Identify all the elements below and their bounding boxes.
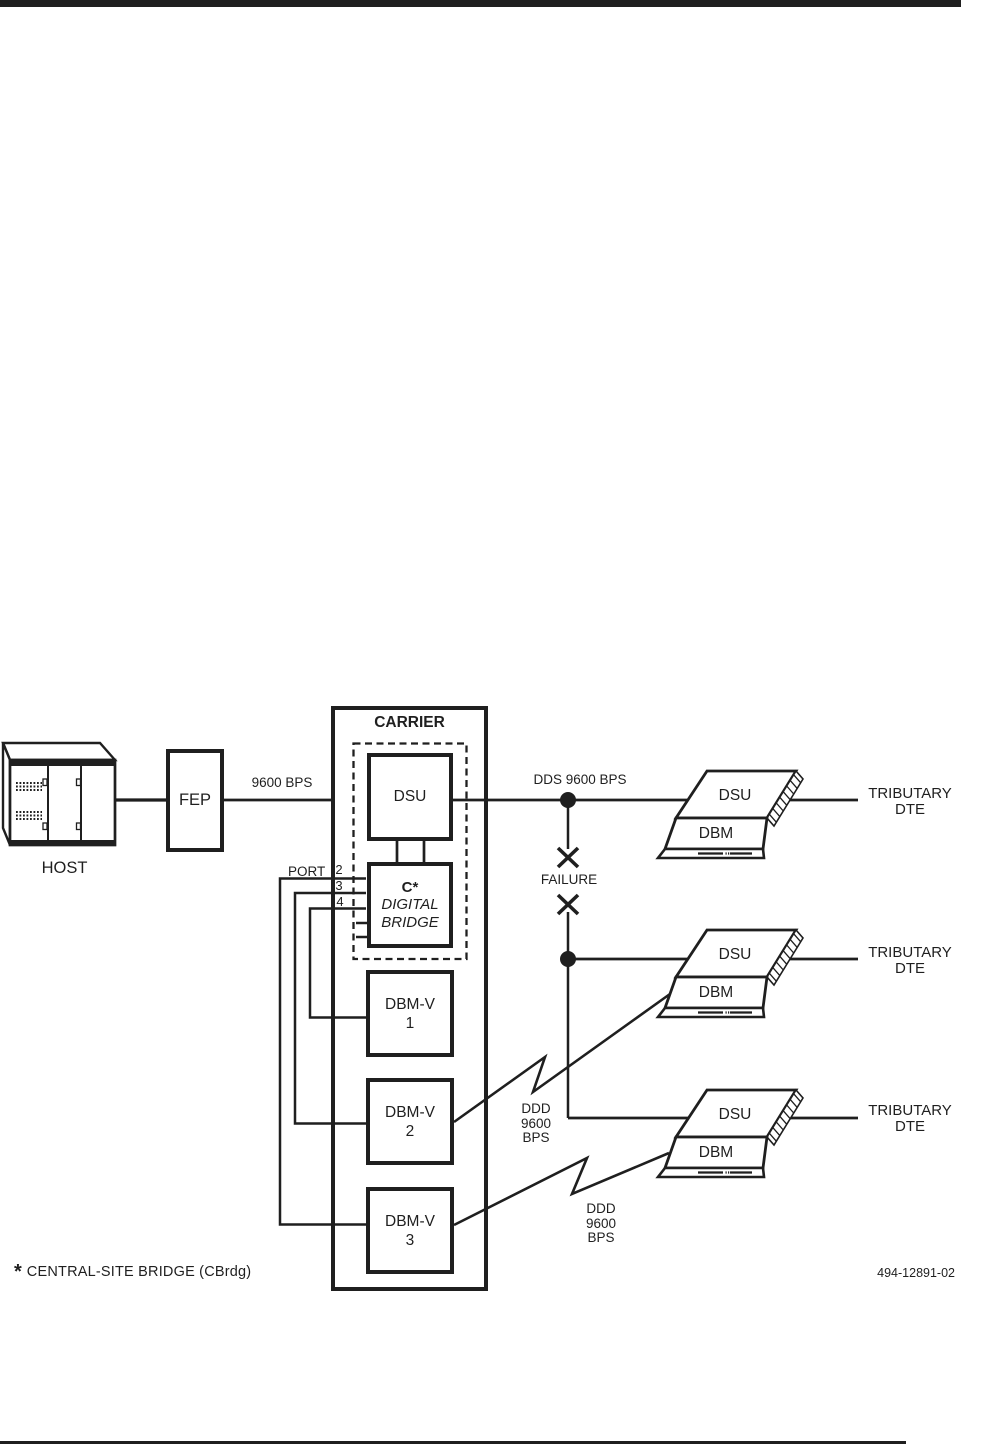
host-line-speed-label: 9600 BPS: [232, 775, 332, 790]
tributary-3-dbm-label: DBM: [676, 1144, 756, 1161]
port-label: PORT: [288, 864, 325, 879]
junction-dot-2: [560, 951, 576, 967]
tributary-unit-3: [658, 1090, 803, 1177]
figure-number: 494-12891-02: [843, 1266, 955, 1280]
digital-bridge-box: C* DIGITAL BRIDGE: [367, 862, 453, 948]
host-label: HOST: [17, 859, 112, 877]
diagram-line-art: [0, 0, 989, 1447]
dbmv-2-box: DBM-V 2: [366, 1078, 454, 1165]
carrier-title: CARRIER: [331, 714, 488, 731]
dbmv-2-label: DBM-V: [385, 1103, 435, 1122]
junction-dot-1: [560, 792, 576, 808]
carrier-dsu-label: DSU: [394, 788, 427, 806]
tributary-1-dte-label: TRIBUTARY DTE: [858, 786, 962, 817]
ddd-label-1: DDD 9600 BPS: [505, 1102, 567, 1146]
dbmv-2-number: 2: [385, 1122, 435, 1141]
dds-line-label: DDS 9600 BPS: [519, 772, 641, 787]
document-page: CARRIER FEP DSU C* DIGITAL BRIDGE DBM-V …: [0, 0, 989, 1447]
fep-label: FEP: [179, 791, 211, 810]
dbmv-1-box: DBM-V 1: [366, 970, 454, 1057]
carrier-dsu-box: DSU: [367, 753, 453, 841]
failure-x-icon-1: [558, 848, 578, 867]
host-cabinet: [3, 743, 115, 845]
dbmv-1-label: DBM-V: [385, 995, 435, 1014]
tributary-2-dbm-label: DBM: [676, 984, 756, 1001]
failure-label: FAILURE: [519, 872, 619, 887]
ddd-label-2: DDD 9600 BPS: [570, 1202, 632, 1246]
dbmv-1-number: 1: [385, 1014, 435, 1033]
dbmv-3-label: DBM-V: [385, 1212, 435, 1231]
tributary-unit-2: [658, 930, 803, 1017]
port-number-2: 2: [332, 863, 346, 878]
fep-box: FEP: [166, 749, 224, 852]
tributary-1-dsu-label: DSU: [695, 787, 775, 804]
bridge-line2: DIGITAL: [381, 896, 439, 914]
bridge-line3: BRIDGE: [381, 914, 439, 932]
footnote-asterisk: *: [14, 1265, 22, 1279]
failure-x-icon-2: [558, 895, 578, 914]
tributary-2-dsu-label: DSU: [695, 946, 775, 963]
tributary-1-dbm-label: DBM: [676, 825, 756, 842]
tributary-3-dte-label: TRIBUTARY DTE: [858, 1103, 962, 1134]
footnote: * CENTRAL-SITE BRIDGE (CBrdg): [14, 1262, 251, 1280]
port-number-3: 3: [332, 879, 346, 894]
port-number-4: 4: [333, 895, 347, 910]
dbmv-3-number: 3: [385, 1231, 435, 1250]
tributary-unit-1: [658, 771, 803, 858]
tributary-2-dte-label: TRIBUTARY DTE: [858, 945, 962, 976]
tributary-3-dsu-label: DSU: [695, 1106, 775, 1123]
footnote-text: CENTRAL-SITE BRIDGE (CBrdg): [27, 1264, 252, 1280]
bridge-name: C*: [381, 879, 439, 897]
dbmv-3-box: DBM-V 3: [366, 1187, 454, 1274]
